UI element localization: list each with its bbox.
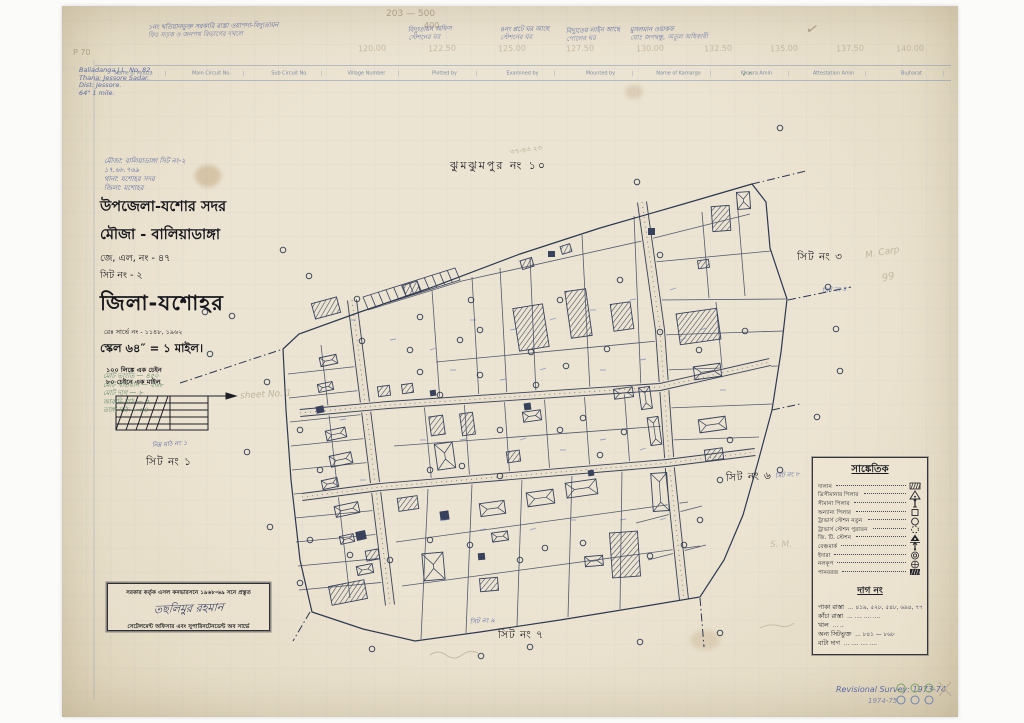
building-roofed <box>526 489 555 507</box>
top-annotation-group-0: ১নং খতিয়ানভুক্ত সরকারি রাস্তা ওয়াপদা-ব… <box>148 21 279 39</box>
building-fill <box>478 553 486 561</box>
survey-point <box>297 427 303 433</box>
plot-line <box>654 251 771 262</box>
building-fill <box>430 390 437 397</box>
form-column-2: Sub Circuit No. <box>258 70 322 76</box>
building-hatched <box>377 385 390 397</box>
green-note-3: আবাদি মাঠ — ৫ <box>103 398 163 407</box>
green-note-1: মোট খতিয়ান — ২৬৮ <box>103 381 163 390</box>
roof-ridge <box>565 479 598 498</box>
pencil-squiggle <box>760 623 794 628</box>
legend-leader-dots <box>873 528 906 529</box>
legend-leader-dots <box>836 485 906 486</box>
building-hatched <box>520 257 534 269</box>
grid-coordinate-2: 125.00 <box>498 44 526 54</box>
survey-point <box>280 247 286 253</box>
sheet-7-label: সিট নং ৭ <box>498 628 544 645</box>
sheet-1-label: সিট নং ১ <box>146 455 192 472</box>
stamp-line-3: সেটেলমেন্ট অফিসার এবং সুপারিনটেনডেন্ট অব… <box>116 621 261 631</box>
building-outline <box>365 549 380 561</box>
building-solid <box>524 403 532 411</box>
survey-point <box>407 347 413 353</box>
adjacent-mouza-label: ঝুমঝুমপুর নং ১০ <box>450 157 547 176</box>
plot-line <box>667 404 772 408</box>
plot-line <box>466 484 472 633</box>
survey-point <box>657 252 663 258</box>
boundary-extensions <box>180 171 851 647</box>
page-corner-mark: P 70 <box>73 48 91 57</box>
plot-line <box>291 438 370 446</box>
building-roofed <box>522 410 541 422</box>
building-hatched <box>513 304 549 351</box>
survey-point <box>267 524 273 530</box>
dag-item-value: ... ৪১৯, ৫২৮, ৫৪৮, ৬৯৪, ৭৭৩ <box>848 603 922 613</box>
survey-point <box>542 545 548 551</box>
building-hatched <box>610 302 634 332</box>
survey-number: রেঃ সার্ভে নং - ১১৪৮, ১৯৬২ <box>104 327 280 338</box>
form-column-6: Mounted by <box>569 70 633 76</box>
stall-divider <box>394 287 399 299</box>
upazila-title: উপজেলা-যশোর সদর <box>100 196 280 220</box>
building-roofed <box>325 427 347 441</box>
roof-ridge <box>526 489 555 507</box>
legend-leader-dots <box>834 554 906 555</box>
building-roofed <box>479 500 506 516</box>
survey-point <box>563 363 569 369</box>
building-outline <box>609 531 640 578</box>
building-hatched <box>560 244 572 255</box>
legend-items: দালানত্রিসীমানার পিলারসীমানা পিলারঅন্যান… <box>818 482 922 577</box>
building-outline <box>704 448 723 461</box>
building-roofed <box>565 479 598 498</box>
building-fill <box>524 403 532 411</box>
survey-point <box>717 630 723 636</box>
plot-number-mark <box>550 318 556 320</box>
district-title: জিলা-যশোহর <box>100 287 280 322</box>
building-outline <box>377 385 390 397</box>
survey-point <box>306 273 312 279</box>
building-hatched <box>711 205 731 231</box>
top-annotation-group-4: মুসলমান ওয়াকফঘোঃ জগদ্বন্ধু, অতুল অধিকার… <box>630 24 708 41</box>
building-hatched <box>429 415 446 436</box>
building-roofed <box>422 552 445 581</box>
survey-point <box>837 368 843 374</box>
dag-item-value: ... ৮৪১ — ৮৬৮ <box>855 630 922 640</box>
plot-number-mark <box>340 419 346 420</box>
plot-number-mark <box>430 348 436 350</box>
plot-line <box>737 199 745 296</box>
survey-point <box>297 580 303 586</box>
corner-notes: Baliadanga J.L. No. 82.Thana: Jessore Sa… <box>79 67 153 97</box>
corner-note-3: 64" 1 mile. <box>79 90 153 98</box>
annotation-line: স্টেশনের ঘর <box>500 33 550 42</box>
plot-line <box>402 546 700 586</box>
survey-point <box>497 427 503 433</box>
grid-coordinate-0: 120.00 <box>358 44 386 54</box>
stamp-line-1: সরকার কর্তৃক এসল কনভারসনে ১৯৬৮-৬৯ সনে প্… <box>116 587 261 597</box>
building-solid <box>648 228 655 235</box>
survey-point <box>647 553 653 559</box>
plot-line <box>624 388 630 468</box>
survey-point <box>580 540 586 546</box>
survey-point <box>517 557 523 563</box>
plot-line <box>642 214 750 241</box>
building-hatched <box>479 577 498 592</box>
survey-point <box>634 179 640 185</box>
building-outline <box>565 289 592 338</box>
survey-point <box>557 297 563 303</box>
form-column-4: Plotted by <box>413 70 477 76</box>
building-outline <box>311 297 340 319</box>
legend-leader-dots <box>864 493 906 494</box>
plot-number-mark <box>660 518 666 520</box>
building-fill <box>648 228 655 235</box>
legend-leader-dots <box>868 519 906 520</box>
legend-box: সাঙ্কেতিক দালানত্রিসীমানার পিলারসীমানা প… <box>812 457 928 655</box>
building-hatched <box>397 496 419 512</box>
form-column-3: Village Number <box>335 70 399 76</box>
title-hw-line-0: মৌজা: বালিয়াডাঙ্গা সিট নং-২ <box>104 157 280 166</box>
building-hatched <box>704 448 723 461</box>
grid-coordinate-7: 137.50 <box>836 44 864 54</box>
dag-item-label: বাটা দাগ <box>818 638 840 649</box>
building-hatched <box>565 289 592 338</box>
building-outline <box>711 205 731 231</box>
building-outline <box>397 496 419 512</box>
plot-number-mark <box>640 359 646 360</box>
plot-number-mark <box>460 439 466 440</box>
building-hatched <box>329 580 368 606</box>
survey-point <box>528 349 534 355</box>
plot-number-mark <box>640 448 646 450</box>
building-solid <box>548 251 555 257</box>
scanned-map-page: { "page": {"corner_mark": "P 70"}, "form… <box>0 0 1024 723</box>
form-column-1: Main Circuit No. <box>180 70 244 76</box>
survey-point <box>244 449 250 455</box>
pencil-sm-note: S. M. <box>770 540 792 550</box>
building-fill <box>439 510 449 520</box>
legend-leader-dots <box>842 571 906 572</box>
top-annotation-group-1: বিদ্যুতায়ন অফিসস্টেশনের ঘর <box>408 24 452 42</box>
grid-coordinate-5: 132.50 <box>704 44 732 54</box>
pencil-fraction: 203 — 500 <box>386 9 435 19</box>
building-roofed <box>491 531 508 542</box>
form-header-strip: Name of MouzaMain Circuit No.Sub Circuit… <box>95 65 951 81</box>
plot-line <box>517 479 522 626</box>
survey-point <box>417 314 423 320</box>
top-annotation-group-3: বিদ্যুতের লাইন আছেপোলের ঘর <box>566 25 621 43</box>
survey-point <box>457 337 463 343</box>
grid-coordinate-8: 140.00 <box>896 44 924 54</box>
legend-item-10: পানবরজ <box>818 568 922 577</box>
plot-number-mark <box>390 339 396 340</box>
survey-point <box>477 372 483 378</box>
legend-leader-dots <box>856 536 906 537</box>
annotation-line: স্টেশনের ঘর <box>408 32 452 42</box>
revision-check-circles <box>893 680 953 708</box>
green-note-4: ডাঙ্গা মাঠ — ৬৪ <box>103 406 163 415</box>
survey-point <box>742 328 748 334</box>
green-initials: ✓𝄐 <box>742 70 753 80</box>
building-roofed <box>434 442 455 470</box>
survey-point <box>814 414 820 420</box>
building-outline <box>506 450 520 463</box>
legend-leader-dots <box>856 511 906 512</box>
annotation-line: ঘোঃ জগদ্বন্ধু, অতুল অধিকারী <box>630 32 708 41</box>
grid-coordinate-1: 122.50 <box>428 44 456 54</box>
survey-point <box>604 346 610 352</box>
plot-number-mark <box>530 528 536 530</box>
sheet-number: সিট নং - ২ <box>100 269 280 284</box>
title-hw-line-1: ১৭.৬৮.৭৬৯ <box>104 166 280 175</box>
survey-point <box>317 467 323 473</box>
survey-point <box>621 429 627 435</box>
survey-point <box>597 452 603 458</box>
building-roofed <box>329 452 353 467</box>
building-hatched <box>697 259 709 268</box>
roof-ridge <box>422 552 445 581</box>
building-roofed <box>356 564 373 576</box>
building-solid <box>588 470 595 477</box>
survey-point <box>580 415 586 421</box>
building-fill <box>548 251 555 257</box>
dash-dot-boundary <box>752 171 806 184</box>
legend-title: সাঙ্কেতিক <box>818 462 922 479</box>
plot-line <box>462 241 642 281</box>
scale-text: স্কেল ৬৪″ = ১ মাইল। <box>100 340 280 359</box>
dag-item-value: ... .... .... .... <box>847 614 922 620</box>
building-hatched <box>460 412 476 436</box>
dag-item-3: অন্য সিটভুক্ত... ৮৪১ — ৮৬৮ <box>818 629 922 638</box>
plot-line <box>472 277 479 399</box>
dash-dot-boundary <box>700 598 704 647</box>
dag-item-value: ... .... .... .... <box>844 641 922 647</box>
survey-point <box>527 644 533 650</box>
legend-item-symbol <box>909 567 922 577</box>
form-column-9: Attestation Amin <box>802 70 866 76</box>
building-fill <box>355 530 367 541</box>
stamp-signature: তছলিমুর রহমান <box>111 597 266 621</box>
building-outline <box>401 383 413 393</box>
form-column-5: Examined by <box>491 70 555 76</box>
survey-point <box>777 125 783 131</box>
building-hatched <box>365 549 380 561</box>
top-annotation-group-2: ৪নং প্লটে ঘর আছেস্টেশনের ঘর <box>500 25 550 42</box>
legend-item-8: ইদারা <box>818 551 922 560</box>
plot-number-mark <box>510 329 516 330</box>
building-roofed <box>317 382 333 393</box>
sheet-4-annotation: সিট নং ৪ <box>822 284 848 297</box>
survey-point <box>557 427 563 433</box>
plot-line <box>396 502 688 542</box>
building-outline <box>520 257 534 269</box>
plot-line <box>504 395 510 479</box>
plot-line <box>424 403 432 486</box>
building-outline <box>610 302 634 332</box>
building-outline <box>513 304 549 351</box>
building-roofed <box>736 192 750 210</box>
survey-point <box>833 326 839 332</box>
form-column-7: Name of Kamargo <box>647 70 711 76</box>
stall-divider <box>378 292 383 304</box>
stall-divider <box>371 295 376 307</box>
dash-dot-boundary <box>293 612 310 641</box>
building-roofed <box>647 416 662 445</box>
building-solid <box>430 390 437 397</box>
plot-number-mark <box>600 439 606 440</box>
building-solid <box>355 530 367 541</box>
building-hatched <box>609 531 640 578</box>
building-outline <box>429 415 446 436</box>
building-hatched <box>506 450 520 463</box>
survey-point <box>477 327 483 333</box>
form-column-8: Khasra Amin <box>725 70 789 76</box>
dash-dot-boundary <box>772 404 800 410</box>
survey-point <box>417 369 423 375</box>
mouza-title: মৌজা - বালিয়াডাঙ্গা <box>100 224 280 248</box>
grid-coordinate-6: 135.00 <box>770 44 798 54</box>
roof-ridge <box>479 500 506 516</box>
building-hatched <box>401 383 413 393</box>
form-column-10: Bujharat <box>880 70 944 76</box>
building-solid <box>478 553 486 561</box>
dag-item-0: পাকা রাস্তা... ৪১৯, ৫২৮, ৫৪৮, ৬৯৪, ৭৭৩ <box>818 602 922 611</box>
legend-leader-dots <box>854 502 906 503</box>
title-hw-line-2: থানা: যশোহর সদর <box>104 175 280 184</box>
survey-point <box>307 537 313 543</box>
plot-line <box>670 437 759 440</box>
survey-point <box>459 463 465 469</box>
roof-ridge <box>736 192 750 210</box>
title-handwritten-notes: মৌজা: বালিয়াডাঙ্গা সিট নং-২১৭.৬৮.৭৬৯থান… <box>104 157 280 193</box>
dag-items: পাকা রাস্তা... ৪১৯, ৫২৮, ৫৪৮, ৬৯৪, ৭৭৩কা… <box>818 602 922 647</box>
building-roofed <box>334 502 360 518</box>
sheet-6-label: সিট নং ৬ <box>726 469 773 488</box>
survey-point <box>617 277 623 283</box>
sheet-3-label: সিট নং ৩ <box>797 250 843 267</box>
legend-item-7: বেঞ্চমার্ক <box>818 542 922 551</box>
plot-number-mark <box>670 288 676 290</box>
legend-symbol-hatched-solid-icon <box>909 567 921 577</box>
road-edge <box>638 203 680 601</box>
plot-line <box>584 390 590 471</box>
jl-number: জে, এল, নং - ৪৭ <box>100 252 280 267</box>
building-outline <box>329 580 368 606</box>
roof-ridge <box>698 416 727 433</box>
plot-line <box>544 392 550 475</box>
plot-line <box>658 299 786 300</box>
plot-line <box>421 489 428 639</box>
plot-line <box>500 268 507 396</box>
survey-point <box>427 537 433 543</box>
sheet-9-annotation: সিট নং ৯ <box>470 615 495 628</box>
survey-point <box>369 646 375 652</box>
building-outline <box>560 244 572 255</box>
building-roofed <box>698 416 727 433</box>
plot-number-mark <box>630 299 636 300</box>
green-note-2: মোট দাগ — ৮ <box>103 389 163 398</box>
building-outline <box>460 412 476 436</box>
plot-number-mark <box>500 379 506 380</box>
legend-item-label: পানবরজ <box>818 567 838 577</box>
survey-point <box>478 653 484 659</box>
plot-line <box>432 290 440 402</box>
building-solid <box>439 510 449 520</box>
grid-coordinate-3: 127.50 <box>566 44 594 54</box>
legend-leader-dots <box>841 545 906 546</box>
plot-number-mark <box>540 368 546 370</box>
survey-point <box>717 477 723 483</box>
pencil-squiggle <box>430 651 478 658</box>
building-roofed <box>339 534 354 545</box>
building-outline <box>479 577 498 592</box>
stall-divider <box>386 290 391 302</box>
survey-point <box>637 639 643 645</box>
title-hw-line-3: জিলা: যশোহর <box>104 184 280 193</box>
survey-point <box>696 347 702 353</box>
building-hatched <box>311 297 340 319</box>
survey-point <box>347 552 353 558</box>
building-fill <box>588 470 595 477</box>
green-note-0: মোট ভাংতি — ৪৫০ <box>103 372 163 381</box>
survey-point <box>697 517 703 523</box>
plot-number-mark <box>520 438 526 440</box>
grid-coordinate-4: 130.00 <box>636 44 664 54</box>
dag-title: দাগ নং <box>818 583 922 598</box>
stamp-box: সরকার কর্তৃক এসল কনভারসনে ১৯৬৮-৬৯ সনে প্… <box>107 583 270 631</box>
building-outline <box>697 259 709 268</box>
legend-leader-dots <box>837 562 906 563</box>
surveyor-notes-green: মোট ভাংতি — ৪৫০মোট খতিয়ান — ২৬৮মোট দাগ … <box>103 372 163 415</box>
